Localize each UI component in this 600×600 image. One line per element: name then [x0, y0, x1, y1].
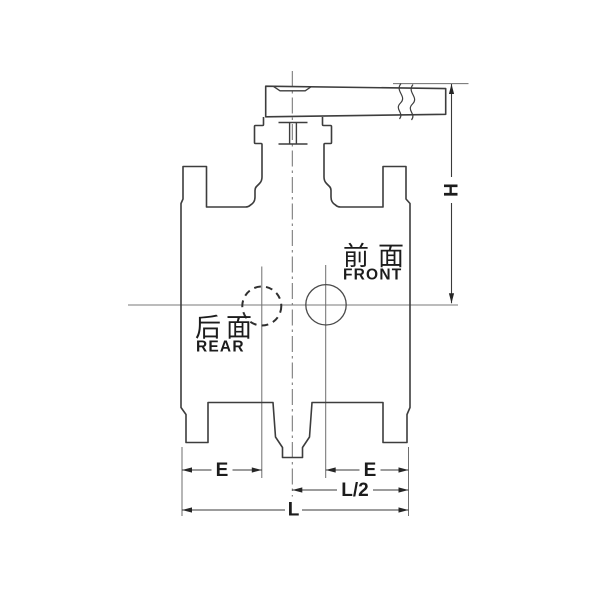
dimension-E-right-label: E: [364, 460, 377, 481]
dimension-L: L: [182, 500, 409, 521]
dimension-E-right-arrow-right: [399, 467, 409, 472]
dimension-E-right: E: [326, 460, 409, 481]
dimension-E-left-label: E: [216, 460, 229, 481]
dimension-L2-arrow-left: [292, 487, 302, 492]
annotations: 前面 FRONT 后面 REAR: [195, 241, 413, 356]
dimension-L-arrow-right: [399, 507, 409, 512]
valve-body-outline: [181, 117, 410, 458]
dimension-E-left-arrow-left: [182, 467, 192, 472]
dimension-L-arrow-left: [182, 507, 192, 512]
dimension-L2-arrow-right: [399, 487, 409, 492]
dimension-L-label: L: [288, 500, 300, 521]
dimension-E-left: E: [182, 460, 262, 481]
rear-label-english: REAR: [196, 339, 245, 356]
valve-stem: [279, 123, 308, 145]
dimension-H: H: [442, 84, 463, 303]
dimension-L2-label: L/2: [341, 480, 368, 501]
valve-body: [181, 117, 410, 458]
dimension-H-arrow-top: [449, 84, 454, 94]
valve-engineering-drawing: H E E L/2: [0, 0, 600, 600]
extension-lines: [182, 84, 469, 516]
dimension-L2: L/2: [292, 480, 408, 501]
front-label-english: FRONT: [343, 267, 402, 284]
dimension-E-right-arrow-left: [326, 467, 336, 472]
dimensions: H E E L/2: [182, 84, 463, 521]
dimension-H-label: H: [442, 183, 463, 197]
centerlines: [128, 71, 458, 497]
dimension-H-arrow-bottom: [449, 293, 454, 303]
drawing-svg: H E E L/2: [0, 0, 600, 600]
dimension-E-left-arrow-right: [252, 467, 262, 472]
